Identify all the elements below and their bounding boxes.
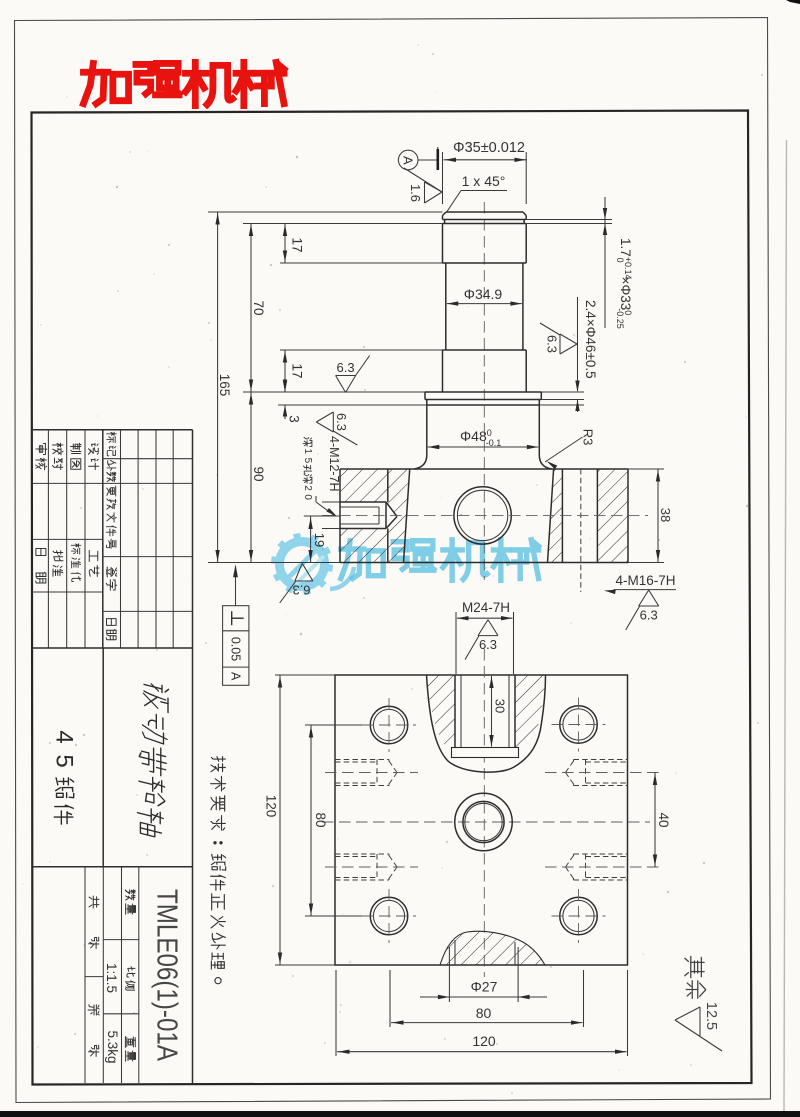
svg-text:6.3: 6.3 (640, 608, 658, 623)
svg-text:5.3kg: 5.3kg (105, 1030, 120, 1063)
svg-text:A: A (229, 672, 243, 681)
svg-text:0.05: 0.05 (229, 637, 243, 661)
svg-text:3: 3 (287, 415, 302, 423)
svg-text:TMLE06(1)-01A: TMLE06(1)-01A (151, 889, 183, 1062)
svg-text:4-M12-7H: 4-M12-7H (327, 436, 341, 492)
svg-text:2: 2 (302, 485, 313, 491)
svg-text:5: 5 (302, 458, 313, 464)
svg-text:0: 0 (302, 494, 313, 500)
svg-text:70: 70 (251, 300, 266, 315)
svg-text:12.5: 12.5 (703, 1002, 719, 1030)
svg-text:38: 38 (658, 508, 673, 522)
svg-text:30: 30 (493, 699, 508, 713)
svg-text:6.3: 6.3 (292, 583, 310, 598)
svg-text:17: 17 (289, 363, 304, 378)
svg-text:40: 40 (656, 812, 671, 827)
svg-text:90: 90 (251, 466, 266, 481)
svg-text:6.3: 6.3 (334, 413, 349, 431)
svg-text:Φ27: Φ27 (471, 979, 498, 995)
svg-text:19: 19 (312, 533, 327, 547)
svg-text:4: 4 (51, 730, 78, 743)
svg-text:Φ34.9: Φ34.9 (464, 286, 503, 302)
svg-text:1: 1 (302, 448, 313, 454)
svg-text:5: 5 (51, 754, 78, 767)
svg-text:6.3: 6.3 (479, 637, 497, 652)
svg-text:80: 80 (313, 812, 328, 827)
svg-text:M24-7H: M24-7H (462, 600, 510, 615)
svg-text:1:1.5: 1:1.5 (104, 963, 119, 993)
svg-text:1 x 45°: 1 x 45° (462, 173, 506, 189)
svg-text:1.6: 1.6 (408, 184, 423, 202)
svg-text:6.3: 6.3 (545, 335, 560, 353)
svg-text:165: 165 (217, 374, 232, 397)
svg-text:2.4×Φ46±0.5: 2.4×Φ46±0.5 (583, 300, 598, 379)
svg-text:80: 80 (476, 1005, 492, 1021)
svg-text:120: 120 (472, 1033, 496, 1049)
svg-text:A: A (401, 156, 416, 165)
svg-text:4-M16-7H: 4-M16-7H (615, 573, 675, 588)
svg-text:120: 120 (264, 795, 279, 818)
svg-text:Φ35±0.012: Φ35±0.012 (453, 140, 525, 156)
svg-text:6.3: 6.3 (337, 360, 355, 375)
svg-text:R3: R3 (581, 429, 596, 446)
svg-text:17: 17 (289, 237, 304, 252)
